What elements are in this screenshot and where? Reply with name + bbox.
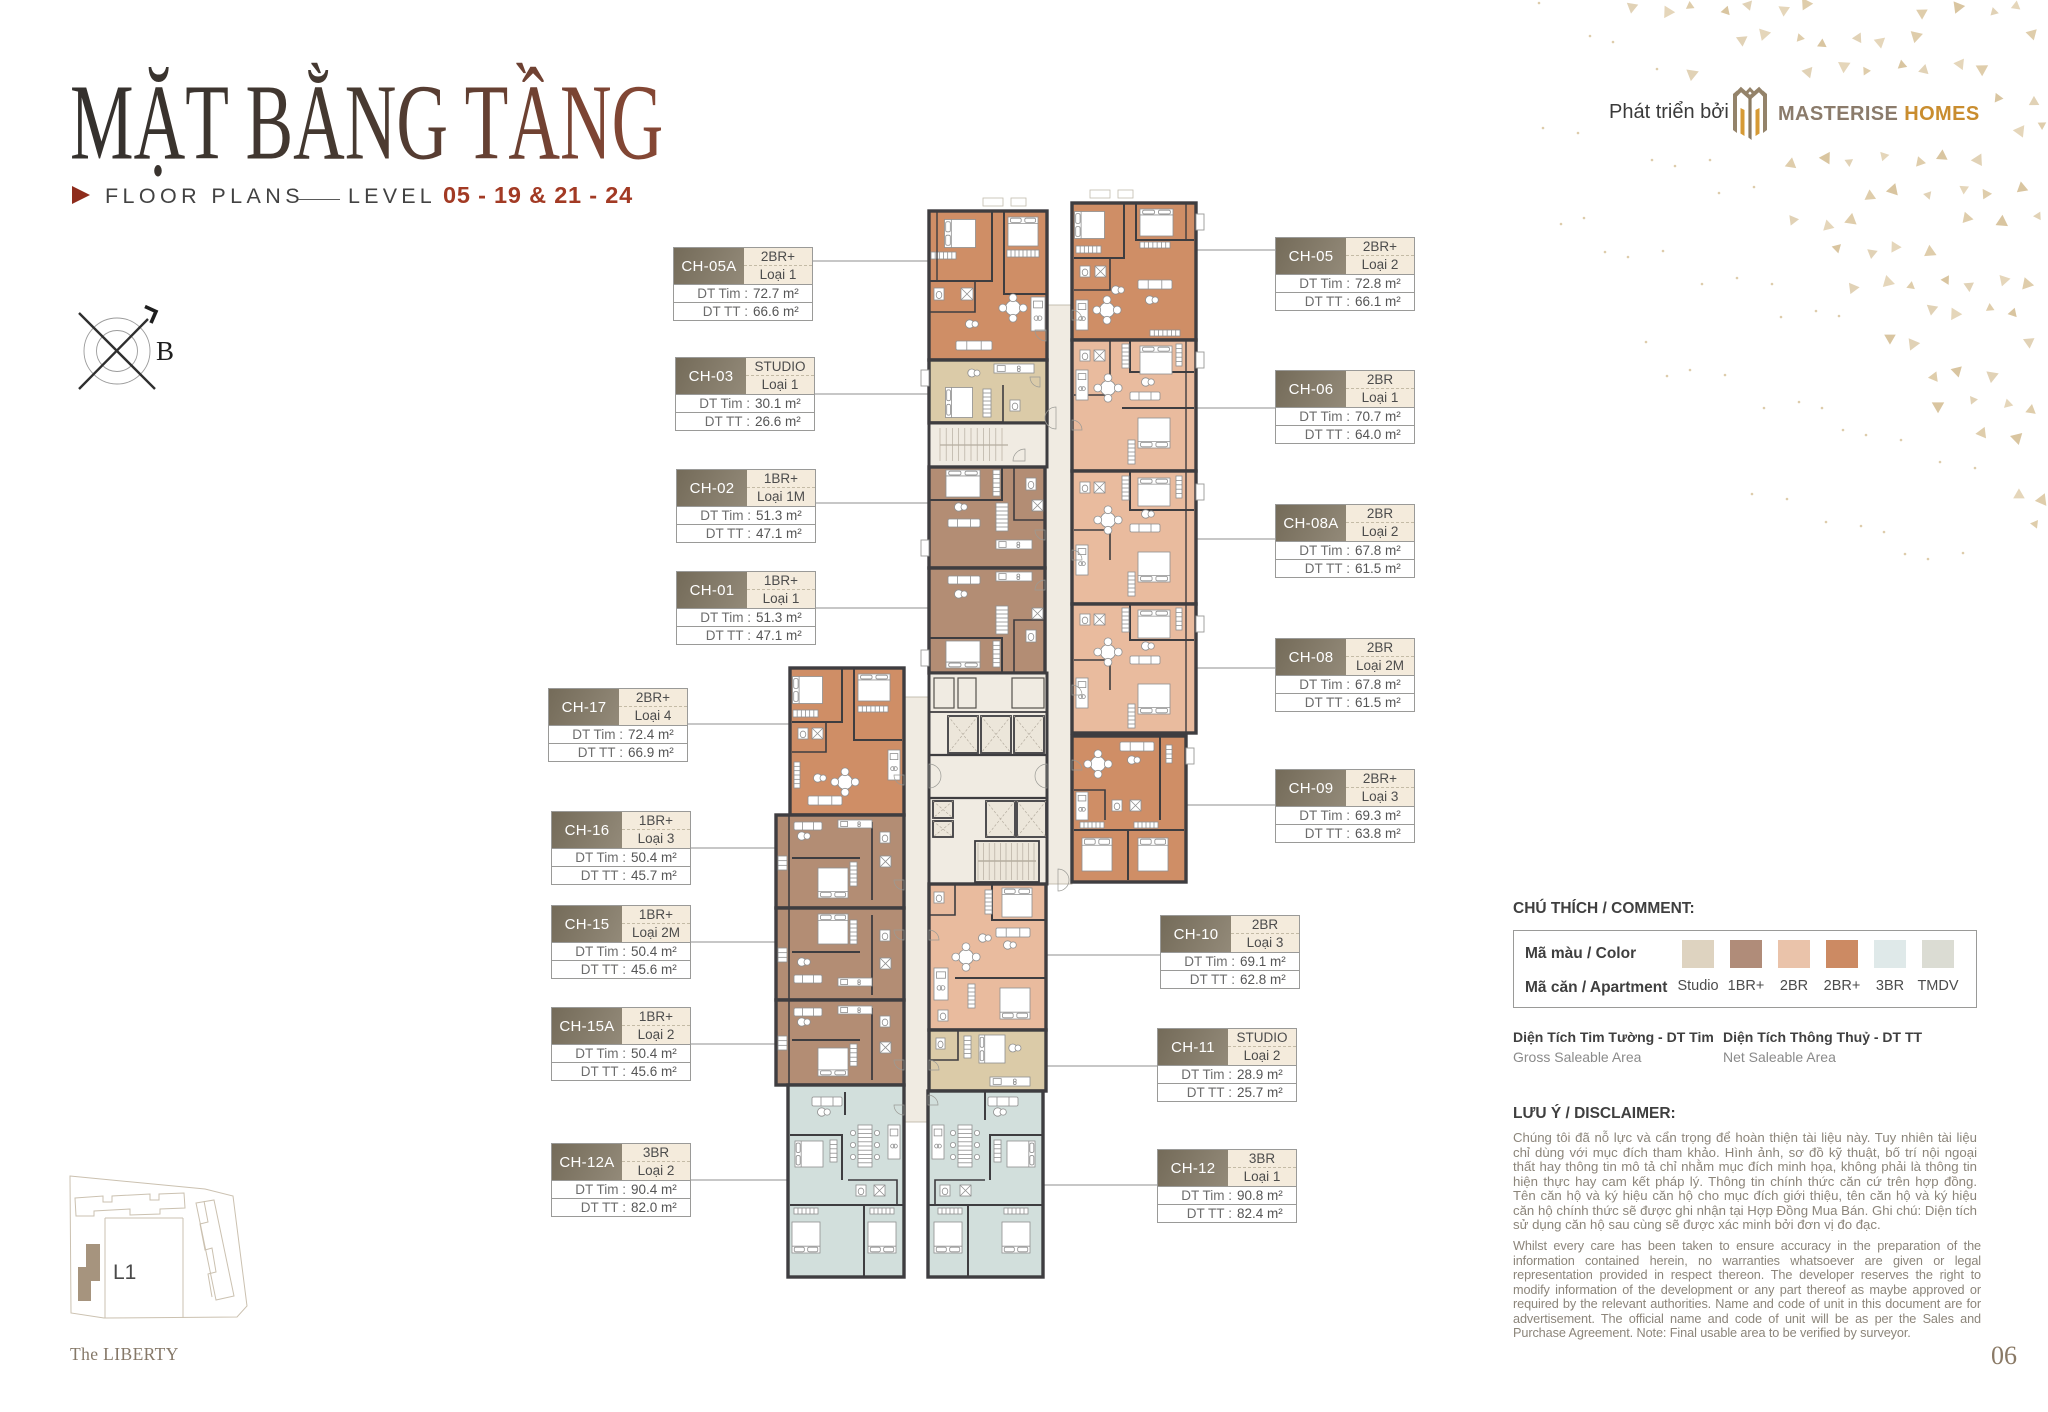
svg-text:B: B <box>156 336 174 366</box>
svg-text:L1: L1 <box>113 1261 136 1284</box>
